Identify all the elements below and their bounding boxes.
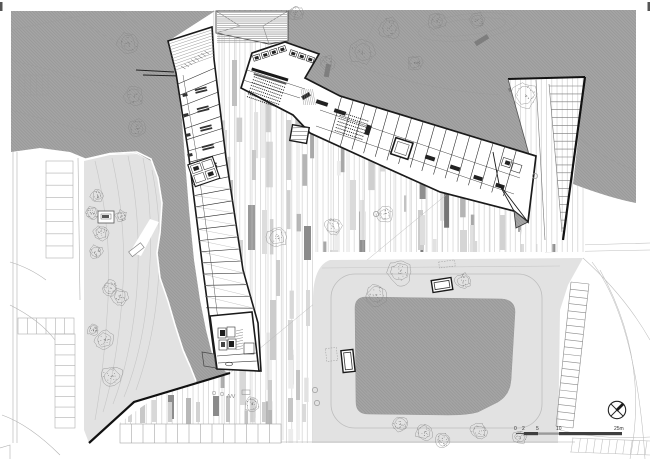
svg-text:25m: 25m	[614, 426, 624, 432]
svg-text:0: 0	[514, 426, 517, 432]
svg-text:5: 5	[536, 426, 539, 432]
svg-text:10: 10	[556, 426, 562, 432]
svg-text:2: 2	[522, 426, 525, 432]
